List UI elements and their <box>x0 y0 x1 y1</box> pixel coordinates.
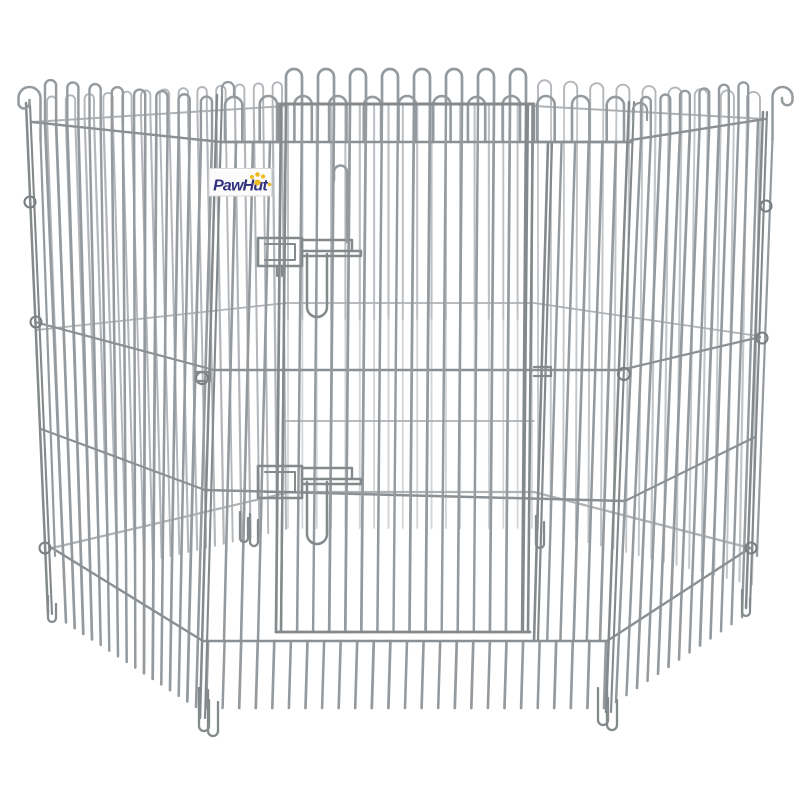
svg-text:PawHut: PawHut <box>213 178 268 195</box>
